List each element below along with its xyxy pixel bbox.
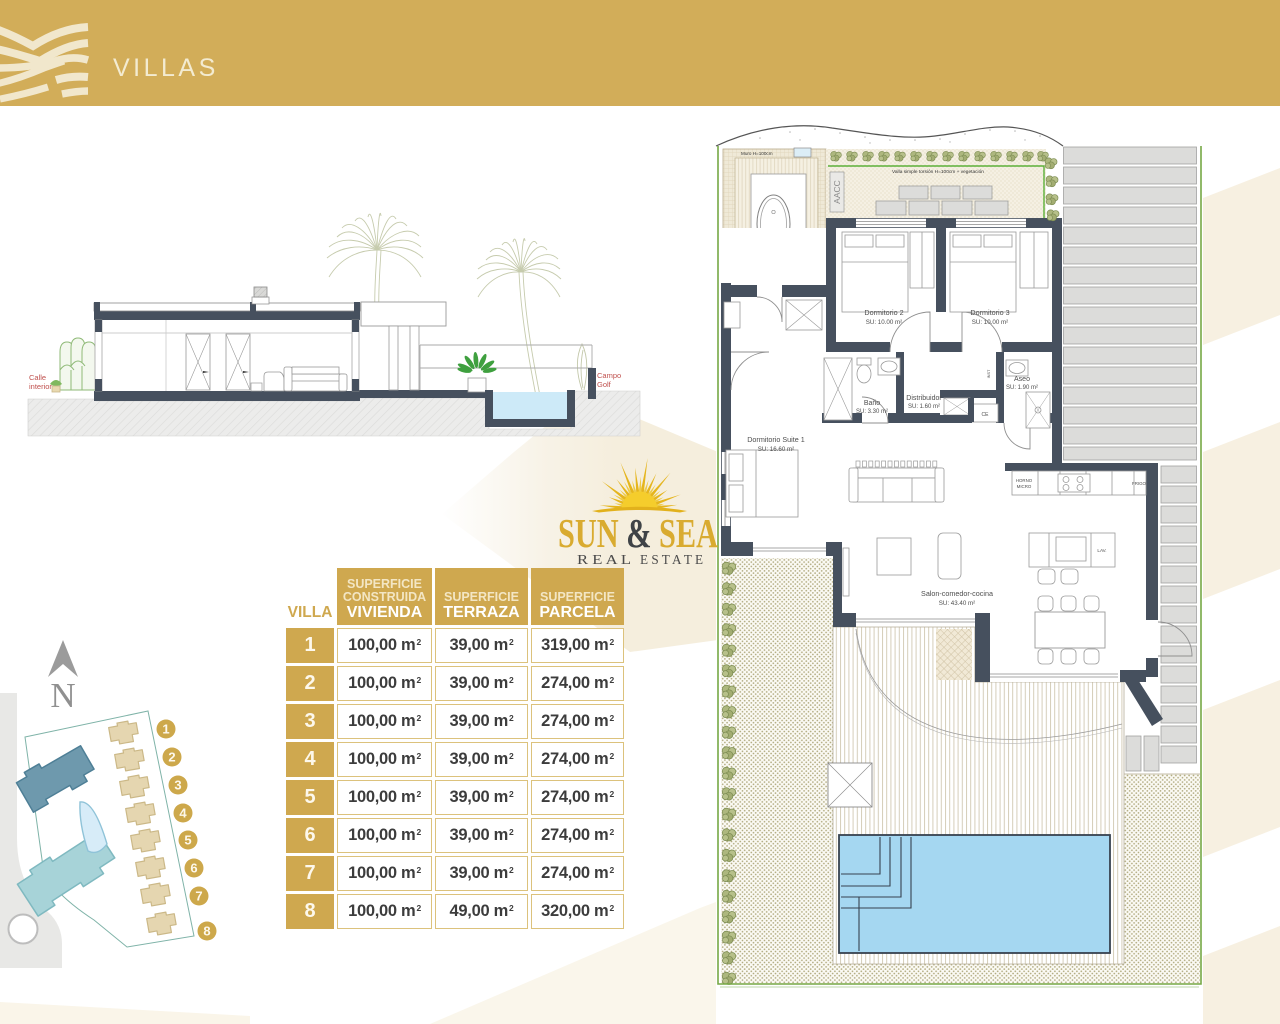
svg-text:MICRO: MICRO <box>1017 484 1032 489</box>
svg-text:INST: INST <box>987 369 991 378</box>
svg-text:4: 4 <box>179 806 187 821</box>
svg-text:SU: 10.00 m²: SU: 10.00 m² <box>866 319 902 326</box>
svg-text:Muro H=100cm: Muro H=100cm <box>741 151 773 156</box>
svg-text:7: 7 <box>195 889 202 904</box>
svg-text:Dormitorio 3: Dormitorio 3 <box>970 308 1009 317</box>
svg-text:8: 8 <box>203 924 210 939</box>
svg-text:AACC: AACC <box>832 180 842 204</box>
svg-text:Golf: Golf <box>597 380 612 389</box>
svg-text:Aseo: Aseo <box>1014 376 1030 383</box>
svg-text:SU: 16.60 m²: SU: 16.60 m² <box>758 446 794 453</box>
svg-text:SU: 3.30 m²: SU: 3.30 m² <box>856 409 888 415</box>
svg-text:SU: 43.40 m²: SU: 43.40 m² <box>939 600 975 607</box>
svg-text:1: 1 <box>162 722 169 737</box>
svg-text:FRIGO: FRIGO <box>1132 481 1146 486</box>
svg-text:SU: 1.60 m²: SU: 1.60 m² <box>908 404 940 410</box>
svg-text:Calle: Calle <box>29 373 46 382</box>
svg-text:3: 3 <box>174 778 181 793</box>
svg-text:Salon-comedor-cocina: Salon-comedor-cocina <box>921 589 993 598</box>
svg-text:HORNO: HORNO <box>1016 478 1033 483</box>
svg-text:R E A L: R E A L <box>577 552 631 567</box>
svg-text:Baño: Baño <box>864 400 880 407</box>
svg-text:LAV.: LAV. <box>1097 548 1106 553</box>
svg-text:E S T A T E: E S T A T E <box>640 552 703 567</box>
svg-text:CE: CE <box>982 412 990 418</box>
svg-text:interior: interior <box>29 382 52 391</box>
svg-text:6: 6 <box>190 861 197 876</box>
svg-text:2: 2 <box>168 750 175 765</box>
svg-text:Dormitorio 2: Dormitorio 2 <box>864 308 903 317</box>
svg-text:N: N <box>50 676 75 715</box>
svg-text:Valla simple torsión H=100cm +: Valla simple torsión H=100cm + vegetació… <box>892 169 984 175</box>
svg-text:SU: 1.90 m²: SU: 1.90 m² <box>1006 385 1038 391</box>
svg-text:5: 5 <box>184 833 191 848</box>
svg-text:SUN & SEA: SUN & SEA <box>558 510 718 556</box>
svg-text:SU: 10.00 m²: SU: 10.00 m² <box>972 319 1008 326</box>
svg-text:Distribuidor: Distribuidor <box>906 395 942 402</box>
svg-text:Campo: Campo <box>597 371 621 380</box>
